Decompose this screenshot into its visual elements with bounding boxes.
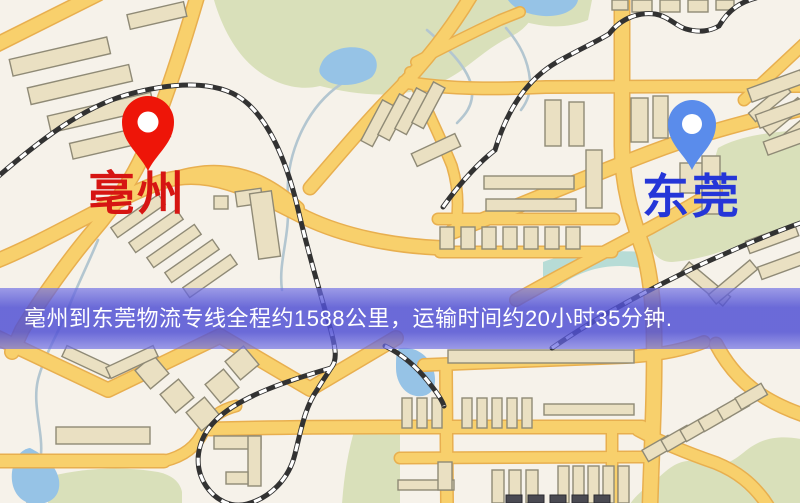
origin-label: 亳州 (88, 172, 186, 219)
map-view: 亳州 东莞 亳州到东莞物流专线全程约1588公里，运输时间约20小时35分钟. (0, 0, 800, 503)
map-canvas (0, 0, 800, 503)
destination-label: 东莞 (642, 175, 742, 222)
route-info-text: 亳州到东莞物流专线全程约1588公里，运输时间约20小时35分钟. (0, 288, 800, 349)
route-info-banner: 亳州到东莞物流专线全程约1588公里，运输时间约20小时35分钟. (0, 288, 800, 349)
